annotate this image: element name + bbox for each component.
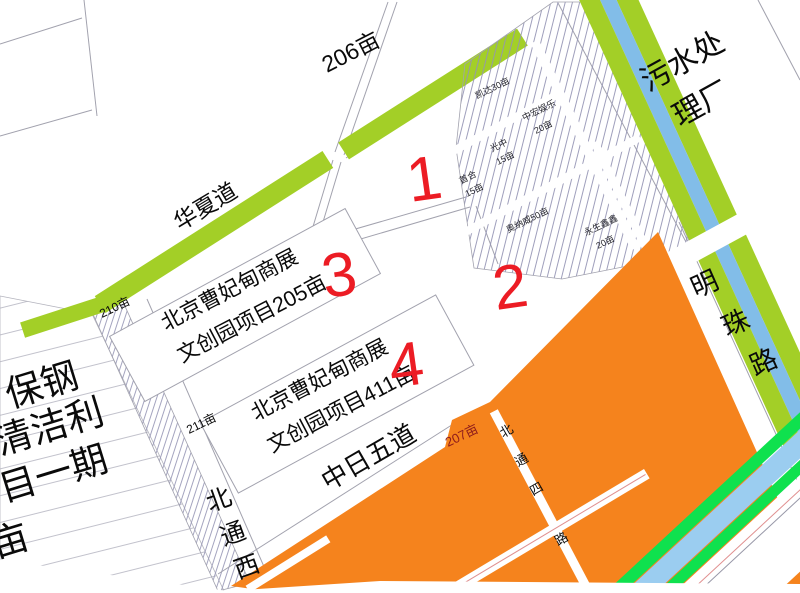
land-use-plan-map: 206亩 华夏道 污水处 理厂 明 珠 路 北京曹妃甸商展 文创园项目205亩 … bbox=[0, 0, 800, 593]
map-svg: 206亩 华夏道 污水处 理厂 明 珠 路 北京曹妃甸商展 文创园项目205亩 … bbox=[0, 0, 800, 593]
